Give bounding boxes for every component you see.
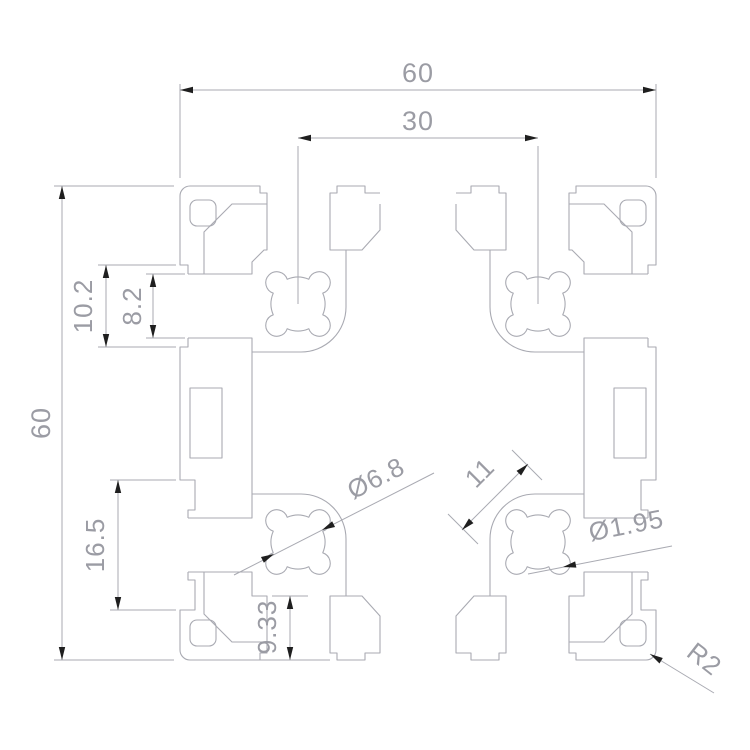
arrowhead xyxy=(287,647,293,660)
dim-label-side-slot: 16.5 xyxy=(80,518,110,573)
arrowhead xyxy=(287,596,293,609)
dim-label-top-overall: 60 xyxy=(402,58,434,88)
profile-right-half xyxy=(456,186,656,660)
dim-corner-radius: R2 xyxy=(648,636,727,693)
dim-label-slot-inner: 8.2 xyxy=(117,286,147,325)
profile-left-half xyxy=(180,186,380,660)
dim-label-lobe-hole: Ø1.95 xyxy=(586,503,666,547)
dim-left-overall: 60 xyxy=(26,186,174,660)
arrowhead xyxy=(298,135,311,141)
arrowhead xyxy=(150,274,156,287)
dim-label-left-overall: 60 xyxy=(26,407,56,439)
dim-slot-inner-opening: 8.2 xyxy=(117,274,185,338)
dim-bottom-web: 9.33 xyxy=(248,596,330,660)
arrowhead xyxy=(115,597,121,610)
dim-label-corner-radius: R2 xyxy=(681,636,727,681)
extrusion-profile xyxy=(180,186,656,660)
drawing-sheet: 60 30 60 10.2 8.2 16.5 Ø6. xyxy=(0,0,750,750)
corner-square-hole xyxy=(190,620,216,646)
dim-top-slot-spacing: 30 xyxy=(298,106,538,304)
dim-label-bottom-web: 9.33 xyxy=(252,600,282,655)
arrowhead xyxy=(525,135,538,141)
dim-chamber-width: 11 xyxy=(448,450,542,544)
arrowhead xyxy=(115,480,121,493)
profile-outline xyxy=(180,186,380,660)
arrowhead xyxy=(103,265,109,278)
dim-label-chamber-width: 11 xyxy=(459,452,501,494)
dim-label-core-hole: Ø6.8 xyxy=(342,451,409,505)
dim-side-slot-opening: 16.5 xyxy=(80,480,176,610)
dim-label-slot-outer: 10.2 xyxy=(68,279,98,334)
arrowhead xyxy=(643,87,656,93)
arrowhead xyxy=(150,325,156,338)
arrowhead xyxy=(59,186,65,199)
dim-label-top-slot-spacing: 30 xyxy=(402,106,434,136)
arrowhead xyxy=(59,647,65,660)
cad-drawing: 60 30 60 10.2 8.2 16.5 Ø6. xyxy=(0,0,750,750)
dim-lobe-hole: Ø1.95 xyxy=(528,503,672,574)
dim-core-hole: Ø6.8 xyxy=(234,451,434,575)
arrowhead xyxy=(180,87,193,93)
arrowhead xyxy=(103,334,109,347)
corner-square-hole xyxy=(190,200,216,226)
